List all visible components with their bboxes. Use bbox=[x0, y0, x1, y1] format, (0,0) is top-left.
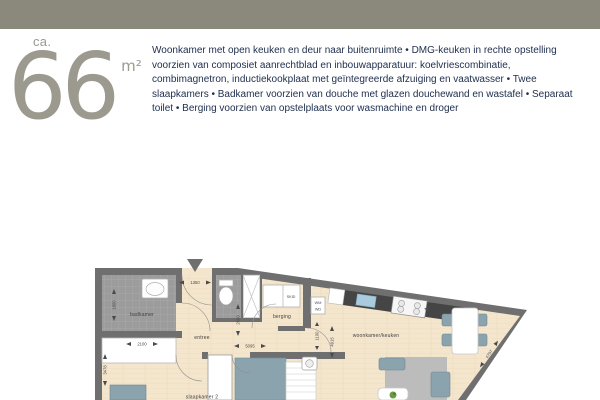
label-skid: SKID bbox=[287, 295, 296, 299]
svg-text:3478: 3478 bbox=[103, 365, 108, 375]
svg-text:1350: 1350 bbox=[190, 280, 200, 285]
sink-icon bbox=[356, 294, 376, 308]
lounge-chair bbox=[379, 358, 405, 370]
shower bbox=[243, 275, 260, 318]
dim-1800: 1800 bbox=[112, 289, 117, 321]
toilet-bowl-icon bbox=[219, 287, 233, 305]
area-value: 66 bbox=[8, 49, 115, 124]
lounge-set bbox=[378, 357, 450, 400]
dim-2600: 2600 bbox=[236, 304, 241, 336]
svg-text:2100: 2100 bbox=[137, 342, 147, 347]
label-wm: WM bbox=[315, 301, 322, 305]
top-accent-bar bbox=[0, 0, 600, 29]
chair bbox=[442, 314, 453, 326]
label-woonkamer-keuken: woonkamer/keuken bbox=[353, 333, 400, 339]
dim-1350: 1350 bbox=[179, 280, 211, 285]
fridge-icon bbox=[328, 288, 345, 305]
svg-text:5095: 5095 bbox=[245, 344, 255, 349]
lounge-chair bbox=[431, 372, 450, 397]
dim-2100: 2100 bbox=[126, 342, 158, 347]
chair bbox=[442, 334, 453, 346]
plant-icon bbox=[390, 392, 397, 399]
dim-3478: 3478 bbox=[103, 354, 108, 386]
shaft bbox=[208, 355, 232, 400]
dim-4915: 4915 bbox=[330, 326, 335, 358]
dining-table bbox=[452, 308, 478, 354]
svg-text:2600: 2600 bbox=[236, 315, 241, 325]
svg-text:1800: 1800 bbox=[112, 300, 117, 310]
svg-text:4915: 4915 bbox=[330, 337, 335, 347]
bed bbox=[235, 357, 317, 400]
label-badkamer: badkamer bbox=[130, 312, 154, 318]
floorplan: badkamer SKID berging WM WD bbox=[90, 258, 535, 400]
dim-5095: 5095 bbox=[234, 344, 266, 349]
label-berging: berging bbox=[273, 314, 291, 320]
label-entree: entree bbox=[194, 335, 209, 341]
toilet-tank-icon bbox=[219, 280, 233, 286]
label-slaapkamer2: slaapkamer 2 bbox=[186, 395, 218, 400]
apartment-description: Woonkamer met open keuken en deur naar b… bbox=[152, 44, 580, 117]
room-toilet bbox=[216, 275, 241, 318]
area-block: ca. 66 m² bbox=[8, 34, 148, 124]
wardrobe bbox=[110, 385, 146, 400]
svg-text:1100: 1100 bbox=[315, 331, 320, 341]
entrance-door-opening bbox=[182, 268, 212, 276]
label-wd: WD bbox=[315, 308, 322, 312]
area-unit: m² bbox=[121, 57, 142, 75]
